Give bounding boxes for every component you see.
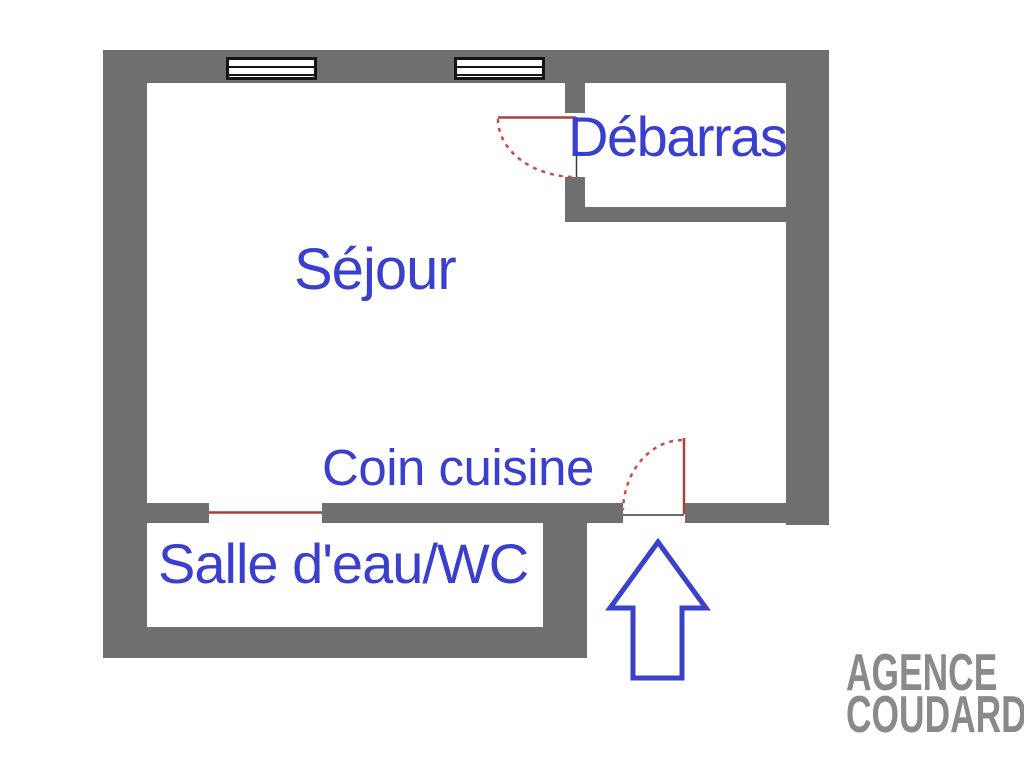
window-sash-line: [457, 66, 542, 76]
wall-entry-side: [543, 523, 587, 658]
debarras-door-swing-arc: [498, 119, 574, 177]
agency-watermark-line2: COUDARD: [846, 694, 1024, 736]
entry-door-swing-arc: [623, 440, 682, 510]
room-label-debarras: Débarras: [568, 106, 786, 168]
wall-kitchen-bathroom: [322, 503, 623, 523]
room-label-salle-eau-wc: Salle d'eau/WC: [158, 533, 528, 595]
window-symbol-1: [226, 57, 317, 80]
room-label-coin-cuisine: Coin cuisine: [322, 440, 594, 496]
wall-bottom: [103, 627, 587, 658]
wall-debarras-bottom: [565, 207, 786, 222]
room-label-sejour: Séjour: [294, 238, 456, 302]
wall-left: [103, 50, 147, 658]
window-symbol-2: [454, 57, 545, 80]
wall-entry-right: [685, 503, 829, 523]
window-sash-line: [229, 66, 314, 76]
agency-watermark: AGENCE COUDARD: [846, 652, 1024, 736]
floor-plan: Séjour Débarras Coin cuisine Salle d'eau…: [0, 0, 1024, 768]
entrance-arrow-icon: [610, 542, 706, 678]
wall-right: [786, 50, 829, 525]
wall-bathroom-stub: [147, 503, 209, 523]
